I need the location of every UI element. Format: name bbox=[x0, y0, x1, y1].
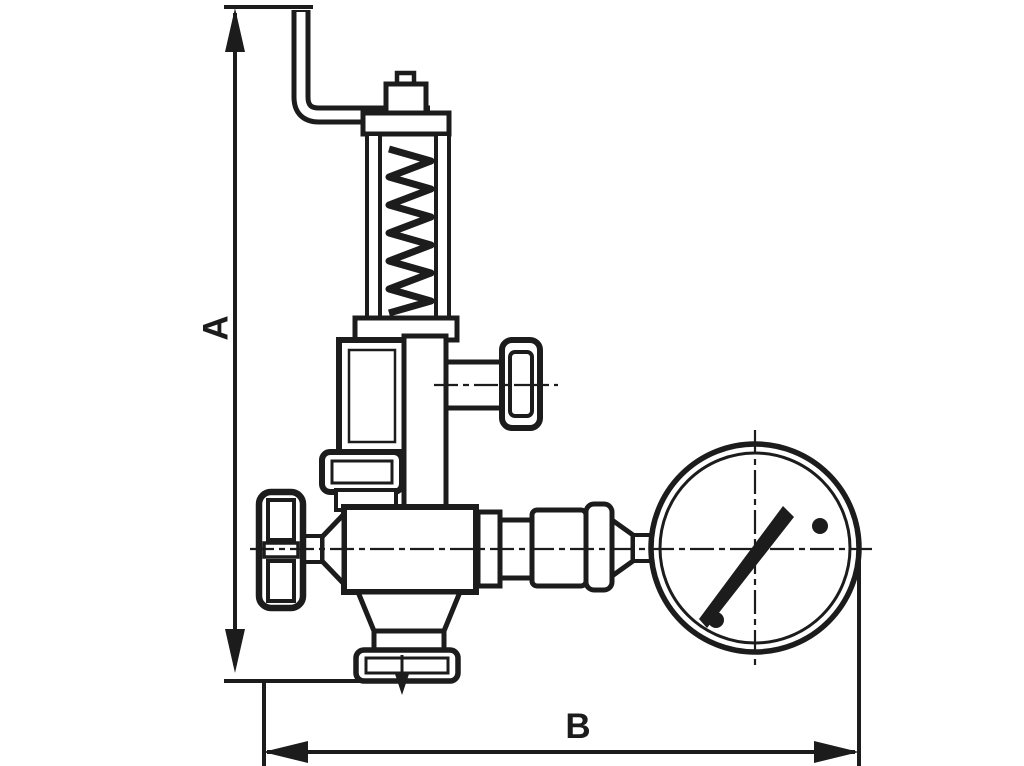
gauge-screw-upper bbox=[812, 518, 828, 534]
mid-flange bbox=[322, 452, 402, 492]
spindle-cap bbox=[386, 84, 426, 115]
body-lower-cone bbox=[358, 592, 460, 631]
spindle-column bbox=[404, 336, 446, 512]
dim-b-arrow-right bbox=[814, 741, 859, 763]
dim-a-arrow-up bbox=[225, 8, 245, 52]
spring-coil bbox=[389, 149, 431, 313]
dim-b-arrow-left bbox=[263, 741, 308, 763]
valve-assembly bbox=[259, 10, 859, 695]
flow-direction-arrow bbox=[395, 674, 409, 695]
dimension-a-label: A bbox=[197, 315, 236, 340]
yoke-right-leg bbox=[436, 134, 449, 320]
bonnet-top-band bbox=[363, 113, 449, 134]
dimension-b-label: B bbox=[565, 707, 590, 746]
gauge-screw-lower bbox=[708, 612, 724, 628]
valve-dimension-drawing: A B bbox=[0, 0, 1024, 766]
technical-drawing-canvas: A B bbox=[0, 0, 1024, 766]
dim-a-arrow-down bbox=[225, 629, 245, 673]
union-fitting-3 bbox=[586, 504, 612, 590]
yoke-left-leg bbox=[367, 134, 380, 320]
